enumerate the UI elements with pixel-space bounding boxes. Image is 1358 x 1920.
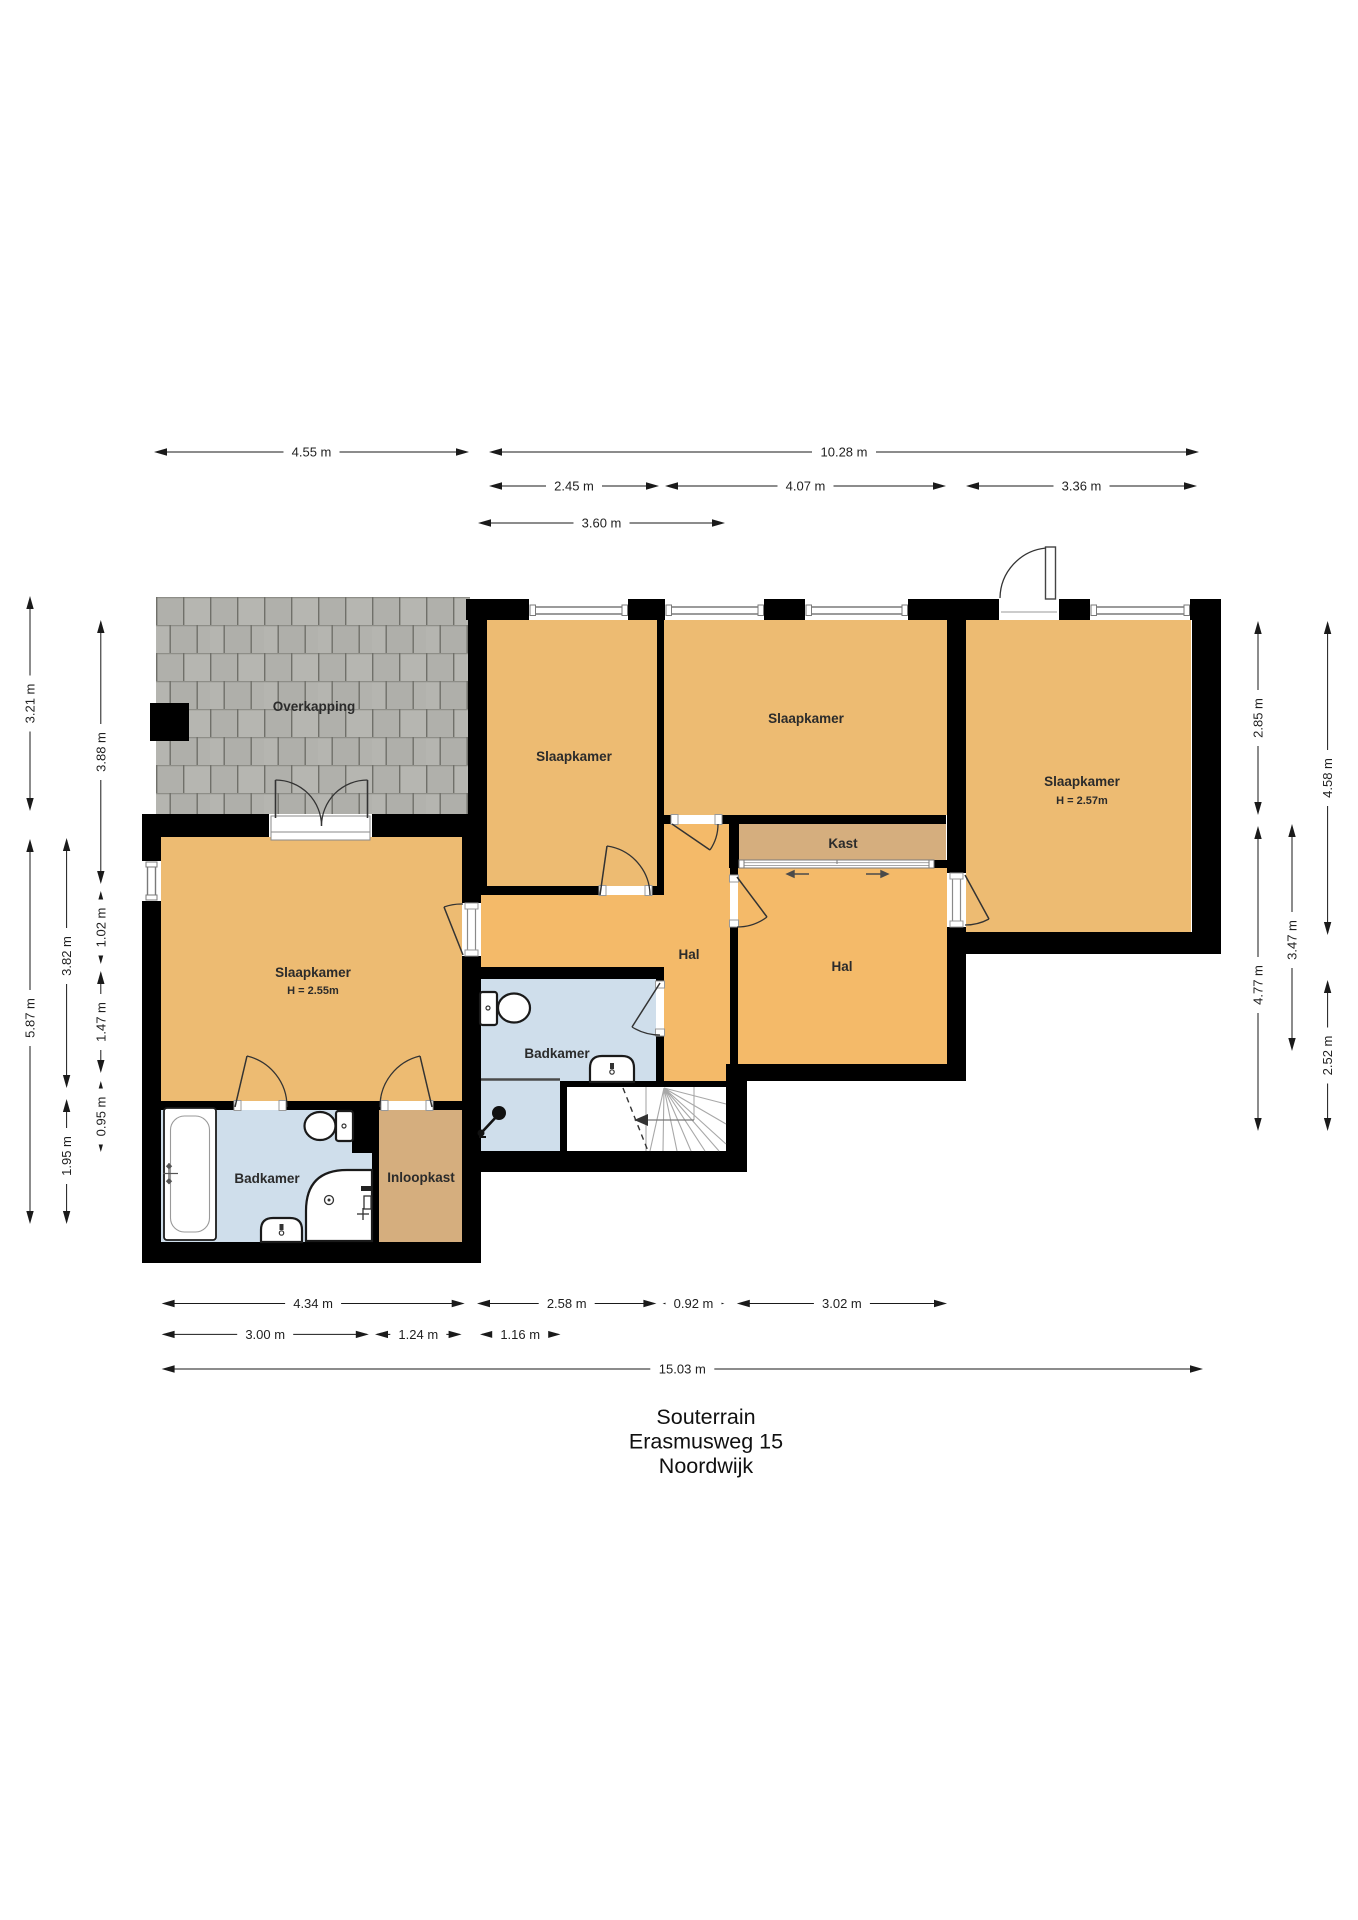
svg-text:1.24 m: 1.24 m xyxy=(398,1327,438,1342)
svg-text:Hal: Hal xyxy=(678,947,699,962)
svg-text:0.92 m: 0.92 m xyxy=(674,1296,714,1311)
svg-text:Erasmusweg 15: Erasmusweg 15 xyxy=(629,1430,783,1454)
svg-text:0.95 m: 0.95 m xyxy=(93,1097,108,1137)
svg-text:1.02 m: 1.02 m xyxy=(93,908,108,948)
svg-text:2.45 m: 2.45 m xyxy=(554,479,594,494)
svg-text:10.28 m: 10.28 m xyxy=(821,445,868,460)
svg-text:2.58 m: 2.58 m xyxy=(547,1296,587,1311)
svg-text:Noordwijk: Noordwijk xyxy=(659,1454,754,1478)
svg-text:3.88 m: 3.88 m xyxy=(93,732,108,772)
svg-text:Souterrain: Souterrain xyxy=(656,1405,755,1429)
svg-text:4.58 m: 4.58 m xyxy=(1320,758,1335,798)
svg-text:1.16 m: 1.16 m xyxy=(500,1327,540,1342)
svg-text:Slaapkamer: Slaapkamer xyxy=(275,965,352,980)
svg-text:Kast: Kast xyxy=(828,836,858,851)
svg-text:2.52 m: 2.52 m xyxy=(1320,1036,1335,1076)
svg-text:3.60 m: 3.60 m xyxy=(582,516,622,531)
svg-text:4.77 m: 4.77 m xyxy=(1251,965,1266,1005)
svg-text:Overkapping: Overkapping xyxy=(273,699,356,714)
svg-text:1.47 m: 1.47 m xyxy=(93,1002,108,1042)
svg-text:2.85 m: 2.85 m xyxy=(1251,698,1266,738)
svg-text:H = 2.55m: H = 2.55m xyxy=(287,985,339,997)
svg-text:Slaapkamer: Slaapkamer xyxy=(536,749,613,764)
svg-text:3.00 m: 3.00 m xyxy=(245,1327,285,1342)
svg-text:5.87 m: 5.87 m xyxy=(23,998,38,1038)
svg-text:Slaapkamer: Slaapkamer xyxy=(768,711,845,726)
svg-text:Badkamer: Badkamer xyxy=(234,1171,300,1186)
svg-text:Inloopkast: Inloopkast xyxy=(387,1170,455,1185)
svg-text:1.95 m: 1.95 m xyxy=(59,1136,74,1176)
svg-text:15.03 m: 15.03 m xyxy=(659,1362,706,1377)
svg-text:4.34 m: 4.34 m xyxy=(293,1296,333,1311)
svg-text:Hal: Hal xyxy=(831,959,852,974)
svg-text:Badkamer: Badkamer xyxy=(524,1046,590,1061)
svg-text:Slaapkamer: Slaapkamer xyxy=(1044,774,1121,789)
svg-text:H = 2.57m: H = 2.57m xyxy=(1056,795,1108,807)
svg-text:3.02 m: 3.02 m xyxy=(822,1296,862,1311)
svg-text:3.36 m: 3.36 m xyxy=(1062,479,1102,494)
svg-text:4.55 m: 4.55 m xyxy=(292,445,332,460)
svg-text:3.47 m: 3.47 m xyxy=(1285,920,1300,960)
svg-text:4.07 m: 4.07 m xyxy=(786,479,826,494)
svg-text:3.21 m: 3.21 m xyxy=(23,684,38,724)
svg-text:3.82 m: 3.82 m xyxy=(59,936,74,976)
